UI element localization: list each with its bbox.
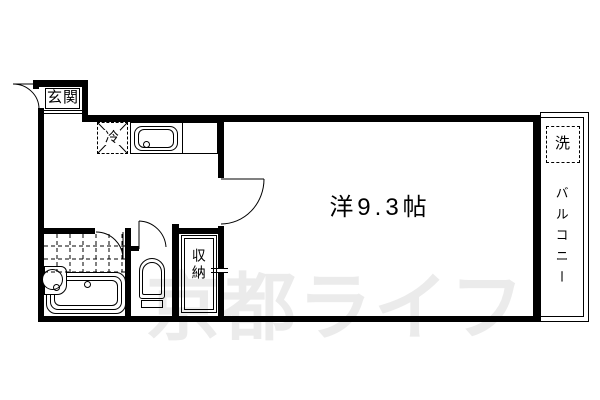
storage-label: 収納 [191, 248, 206, 282]
fridge-label: 冷 [104, 130, 120, 145]
mainroom-door-arc [221, 179, 264, 224]
room-size-label: 洋9.3帖 [300, 195, 460, 220]
bathroom-tile-grid [44, 234, 126, 272]
floorplan-canvas: 京都ライフ 玄関 冷 収納 洗 バルコニー 洋9.3帖 [0, 0, 600, 400]
entrance-door-arc [13, 84, 39, 109]
washer-label: 洗 [555, 136, 570, 152]
closet-tick-1 [211, 268, 228, 269]
entrance-label: 玄関 [47, 90, 79, 106]
toilet-door-arc [139, 221, 166, 247]
balcony-label: バルコニー [554, 186, 568, 291]
closet-tick-2 [211, 272, 228, 273]
